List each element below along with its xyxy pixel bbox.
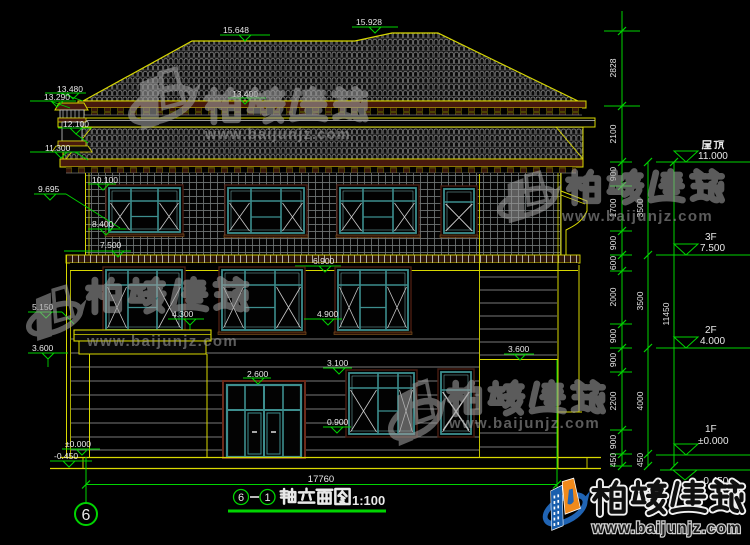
svg-text:900: 900 <box>608 236 618 250</box>
svg-text:1: 1 <box>264 492 270 504</box>
svg-text:www.baijunjz.com: www.baijunjz.com <box>204 127 351 143</box>
svg-text:3.600: 3.600 <box>32 343 54 353</box>
svg-text:1F: 1F <box>705 424 717 435</box>
svg-text:±0.000: ±0.000 <box>698 436 729 447</box>
svg-text:6: 6 <box>82 507 91 524</box>
svg-text:7.500: 7.500 <box>100 240 122 250</box>
svg-text:www.baijunjz.com: www.baijunjz.com <box>86 333 238 350</box>
svg-text:17760: 17760 <box>308 474 334 485</box>
svg-text:450: 450 <box>635 453 645 467</box>
svg-text:6: 6 <box>238 492 244 504</box>
svg-text:9.695: 9.695 <box>38 184 60 194</box>
svg-text:900: 900 <box>608 435 618 449</box>
svg-text:1:100: 1:100 <box>352 493 385 508</box>
svg-text:8.400: 8.400 <box>92 219 114 229</box>
svg-text:www.baijunjz.com: www.baijunjz.com <box>561 208 713 225</box>
svg-text:0.900: 0.900 <box>327 417 349 427</box>
svg-text:11.000: 11.000 <box>698 151 728 162</box>
svg-text:±0.000: ±0.000 <box>65 439 91 449</box>
svg-text:600: 600 <box>608 256 618 270</box>
svg-text:15.928: 15.928 <box>356 17 382 27</box>
svg-text:11450: 11450 <box>661 302 671 325</box>
svg-text:3500: 3500 <box>635 291 645 310</box>
svg-text:2F: 2F <box>705 325 717 336</box>
svg-text:900: 900 <box>608 329 618 343</box>
svg-text:2000: 2000 <box>608 287 618 306</box>
svg-text:6.900: 6.900 <box>313 256 335 266</box>
svg-text:www.baijunjz.com: www.baijunjz.com <box>591 520 742 537</box>
svg-text:3.100: 3.100 <box>327 358 349 368</box>
svg-text:4000: 4000 <box>635 391 645 410</box>
svg-text:4.900: 4.900 <box>317 309 339 319</box>
svg-text:2100: 2100 <box>608 124 618 143</box>
svg-text:7.500: 7.500 <box>700 243 725 254</box>
svg-text:450: 450 <box>608 453 618 467</box>
svg-text:4.000: 4.000 <box>700 336 725 347</box>
svg-text:3.600: 3.600 <box>508 344 530 354</box>
svg-text:2828: 2828 <box>608 58 618 77</box>
svg-text:www.baijunjz.com: www.baijunjz.com <box>448 415 600 432</box>
svg-text:2200: 2200 <box>608 391 618 410</box>
svg-text:3F: 3F <box>705 232 717 243</box>
svg-text:900: 900 <box>608 353 618 367</box>
svg-text:-0.450: -0.450 <box>54 451 78 461</box>
svg-text:15.648: 15.648 <box>223 25 249 35</box>
